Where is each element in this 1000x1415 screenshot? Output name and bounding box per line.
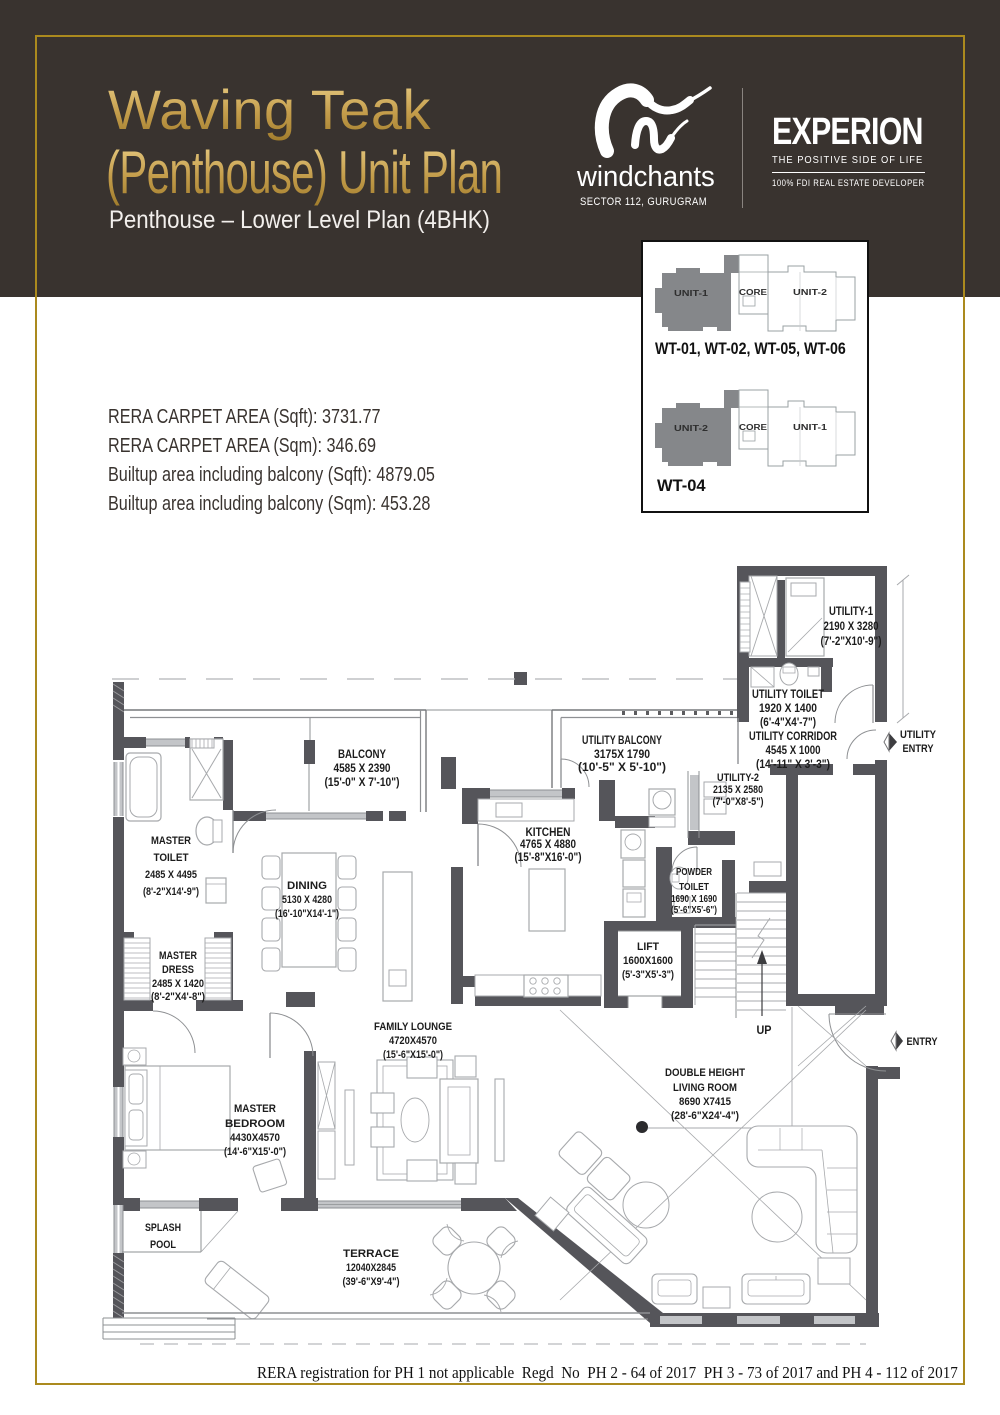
svg-text:UNIT-2: UNIT-2 bbox=[674, 424, 709, 433]
svg-text:CORE: CORE bbox=[739, 288, 768, 297]
svg-text:CORE: CORE bbox=[739, 423, 768, 432]
svg-text:UNIT-1: UNIT-1 bbox=[674, 289, 709, 298]
svg-text:UNIT-1: UNIT-1 bbox=[793, 423, 828, 432]
svg-text:UNIT-2: UNIT-2 bbox=[793, 288, 828, 297]
